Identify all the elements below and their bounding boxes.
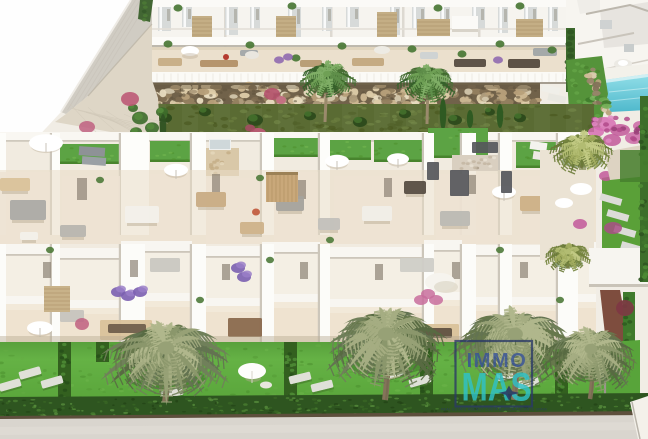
svg-text:MAS: MAS	[462, 366, 532, 410]
svg-text:REAL ESTATE AGENCY COSTA BLANC: REAL ESTATE AGENCY COSTA BLANCA ALICANTE…	[441, 408, 547, 412]
